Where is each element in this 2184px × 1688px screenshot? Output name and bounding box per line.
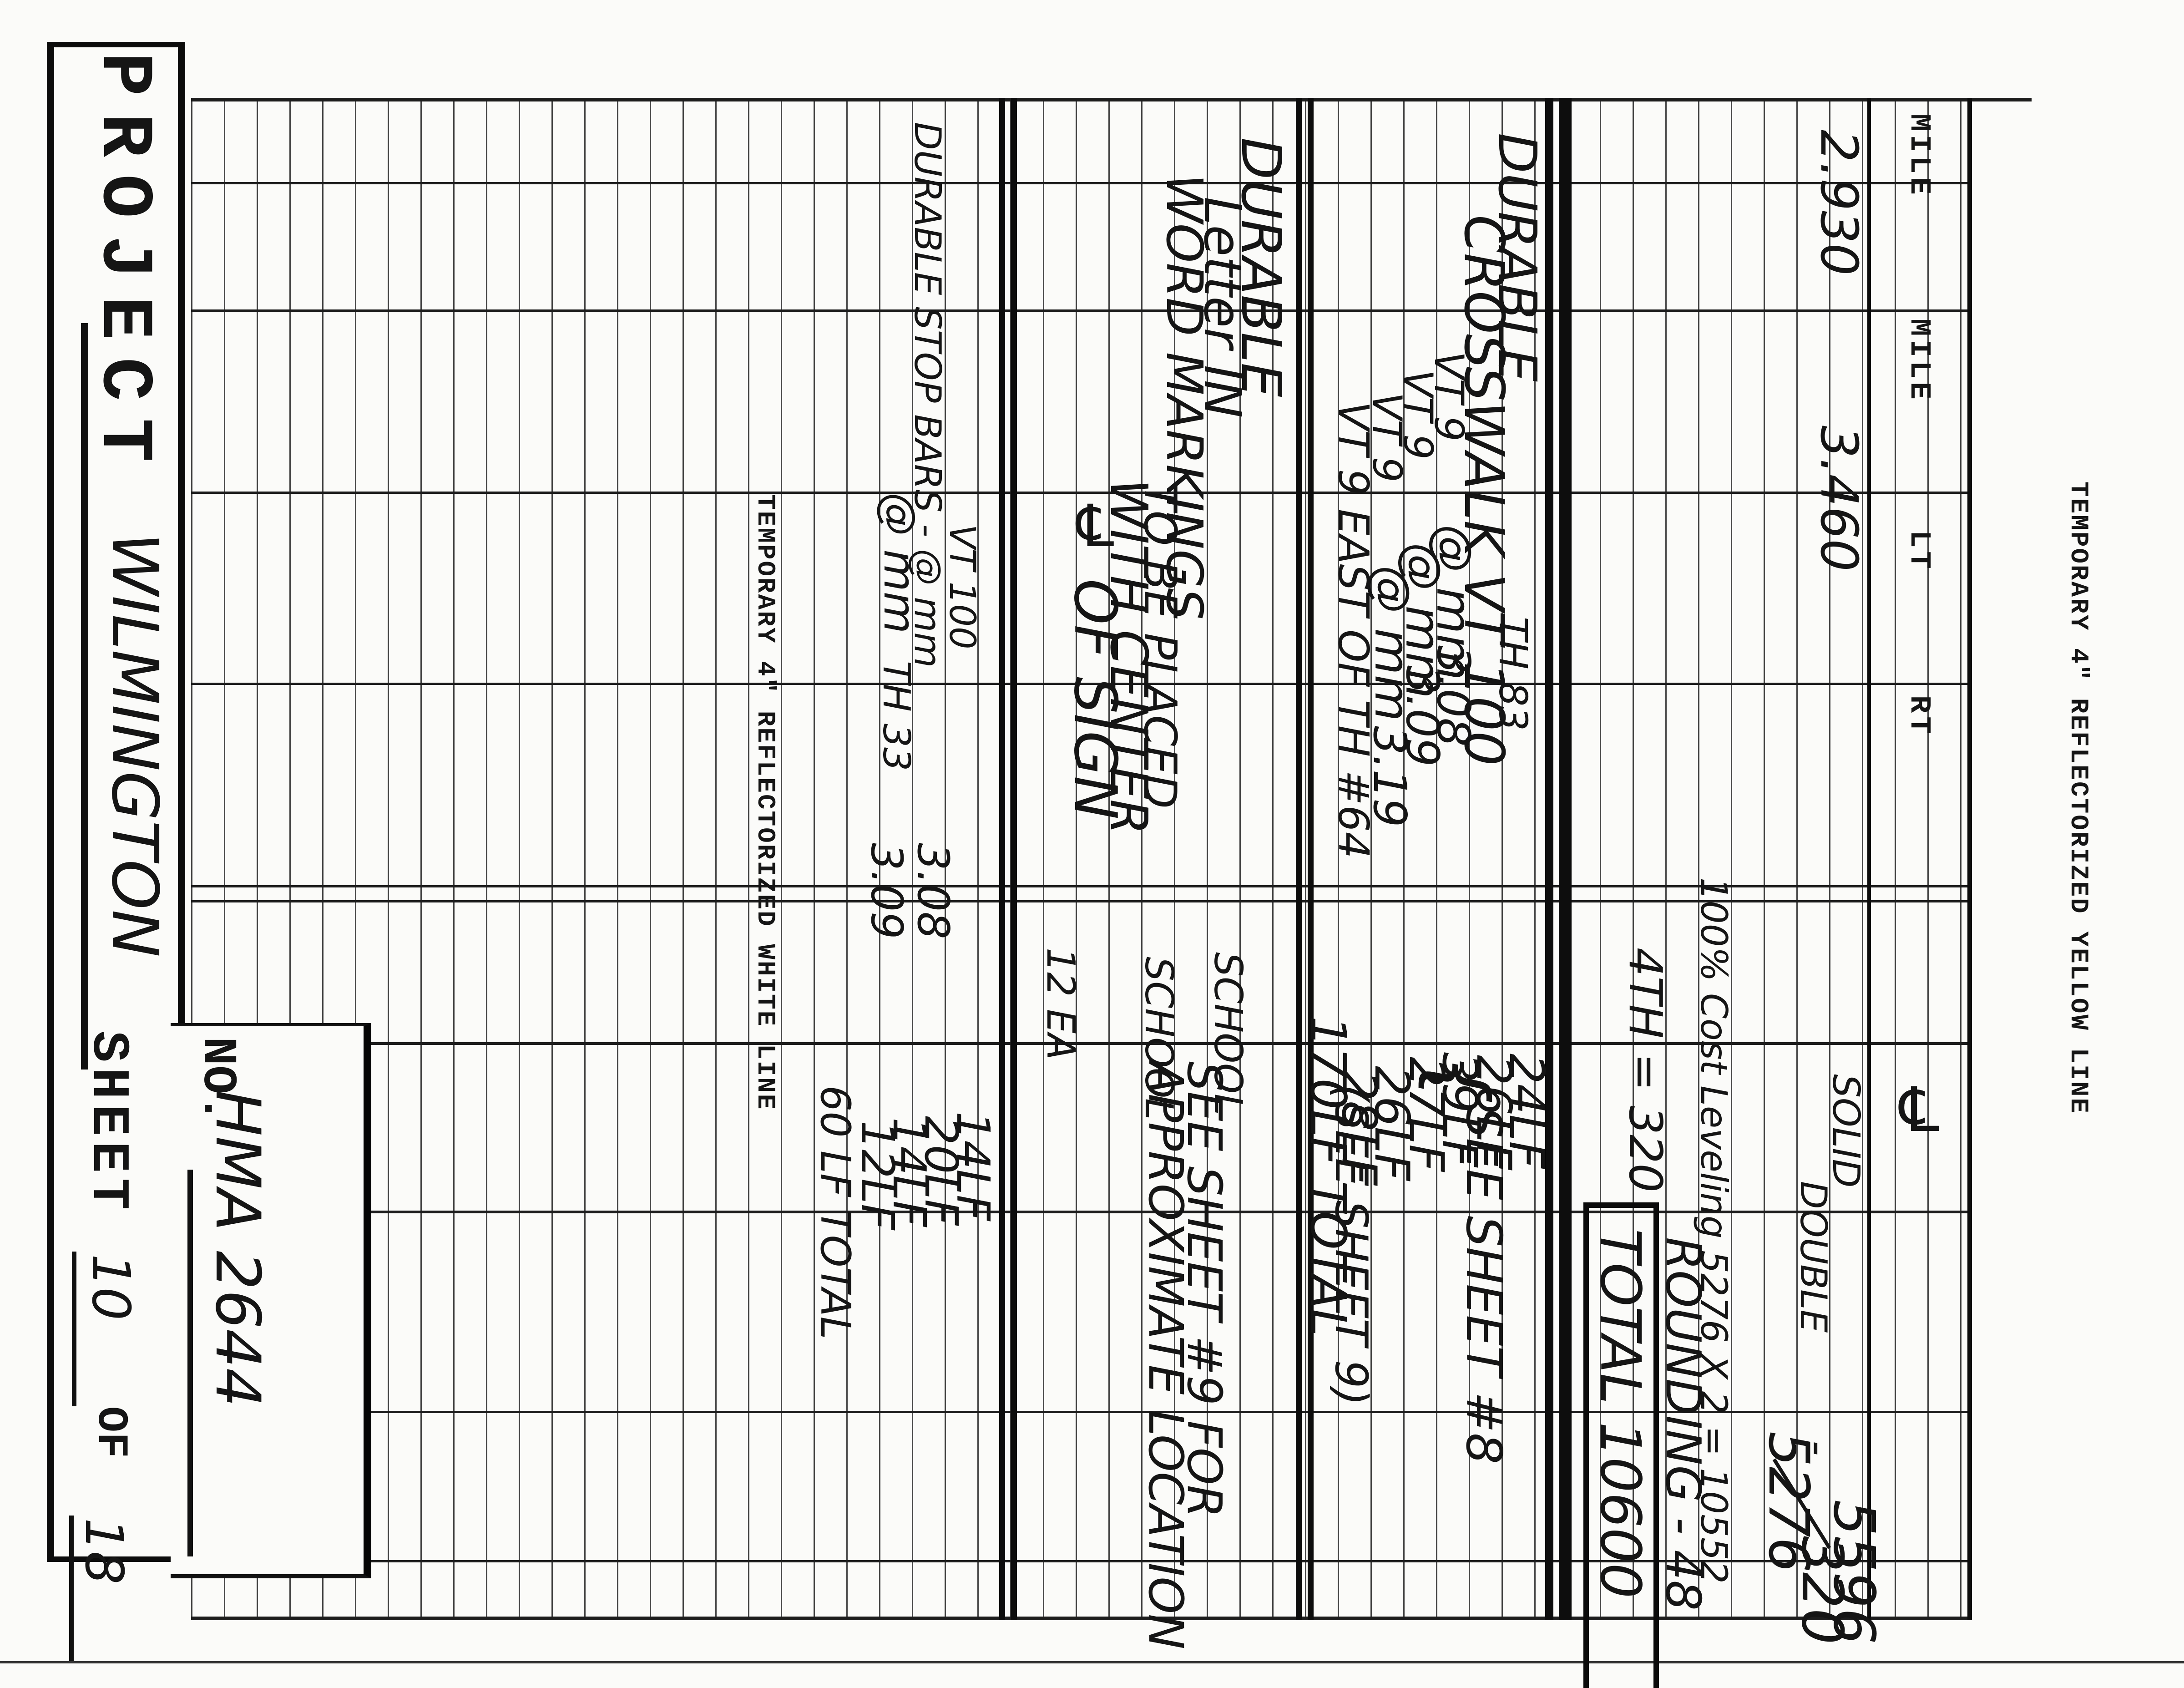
of-label: OF xyxy=(89,1406,132,1458)
sheet-number: 10 xyxy=(84,1254,136,1320)
header-column-line xyxy=(1967,98,1972,1620)
scanned-quantity-sheet: PROJECT WILMINGTON SHEET 10 OF 18 NO. HM… xyxy=(0,0,2184,1688)
total-sheets-underline xyxy=(69,1516,74,1661)
page-edge-line xyxy=(0,1661,2184,1663)
grid-line xyxy=(191,309,1970,312)
sheet-label: SHEET xyxy=(82,1031,134,1215)
wordmark-qty: 12 EA xyxy=(1041,948,1080,1060)
section-divider xyxy=(999,98,1005,1620)
crosswalk-line1-loc: TH 83 xyxy=(1493,617,1532,731)
grid-line xyxy=(191,182,1970,184)
stopbar-loc: VT 100 xyxy=(944,524,980,649)
grid-line xyxy=(191,1617,1970,1620)
rounding-note: ROUNDING - 48 xyxy=(1659,1237,1707,1611)
no-value: HMA 2644 xyxy=(207,1090,268,1407)
project-label: PROJECT xyxy=(86,52,159,479)
see-sheet-8-note: SEE SHEET #8 xyxy=(1459,1107,1508,1464)
stopbar-line2: @ mm xyxy=(877,492,920,634)
header-column-line xyxy=(1867,98,1871,1620)
grid-line xyxy=(191,98,2032,101)
stopbar-line3: TH 33 xyxy=(877,661,915,771)
yellow-line-title: TEMPORARY 4" REFLECTORIZED YELLOW LINE xyxy=(2066,482,2091,1115)
project-underline xyxy=(81,323,88,1070)
header-mile-2: MILE xyxy=(1904,319,1933,403)
centerline-symbol: ℄ xyxy=(1888,1074,1950,1146)
crosswalk-east-row: VT 9 EAST OF TH #64 xyxy=(1332,401,1374,858)
brace-mark: { xyxy=(1412,1054,1505,1105)
solid-label: SOLID xyxy=(1827,1074,1864,1188)
white-line-title: TEMPORARY 4" REFLECTORIZED WHITE LINE xyxy=(753,494,778,1110)
mile-end-value: 3.460 xyxy=(1813,426,1864,572)
header-lt: LT xyxy=(1904,530,1933,573)
stopbar-mm1: 3.08 xyxy=(911,843,954,939)
sheet-number-underline xyxy=(72,1252,76,1406)
difference-value: 5276 xyxy=(1761,1431,1816,1572)
fourth-street-note: 4TH = 320 xyxy=(1623,948,1668,1192)
section-divider xyxy=(1011,98,1017,1620)
see-sheet-9-note: (SEE SHEET 9) xyxy=(1329,1084,1373,1406)
section-divider xyxy=(1559,98,1572,1620)
double-label: DOUBLE xyxy=(1795,1181,1831,1333)
header-mile-1: MILE xyxy=(1904,114,1933,198)
section-divider xyxy=(1308,98,1314,1620)
header-rt: RT xyxy=(1904,695,1933,738)
mile-begin-value: 2.930 xyxy=(1813,130,1864,276)
project-value: WILMINGTON xyxy=(102,532,166,957)
wordmark-line6: ℄ OF SIGN xyxy=(1066,492,1124,820)
wordmark-note2: APPROXIMATE LOCATION xyxy=(1142,1061,1189,1649)
no-underline xyxy=(187,1170,193,1556)
stopbar-mm2: 3.09 xyxy=(864,843,908,939)
total-sheets: 18 xyxy=(77,1518,130,1584)
section-divider xyxy=(1296,98,1302,1620)
stopbar-total: 60 LF TOTAL xyxy=(814,1085,855,1339)
stopbar-qty4: 12LF xyxy=(854,1120,900,1230)
grand-total: TOTAL 10600 xyxy=(1592,1229,1648,1598)
